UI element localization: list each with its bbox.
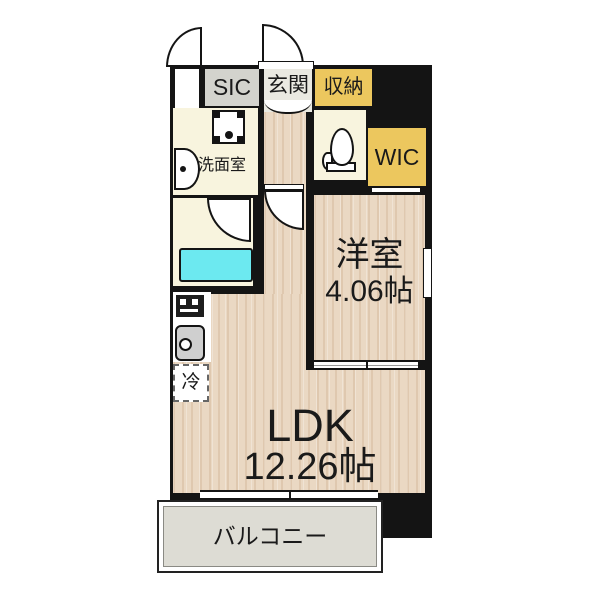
floor-plan: MB SIC 玄関 収納 洗面室 WIC 冷: [0, 0, 600, 600]
corner-pillar: [380, 493, 432, 538]
western-room-size: 4.06帖: [310, 276, 429, 308]
sic-closet: SIC: [205, 69, 259, 106]
ldk-label: LDK: [240, 402, 380, 449]
bathtub-icon: [179, 248, 253, 282]
balcony: バルコニー: [157, 500, 383, 573]
washing-machine-icon: [212, 110, 245, 144]
ldk-size: 12.26帖: [210, 448, 410, 488]
storage-closet: 収納: [315, 69, 372, 106]
entrance-door-arc-icon: [262, 24, 304, 66]
kitchen-sink-icon: [175, 325, 205, 361]
balcony-window-icon: [200, 490, 378, 500]
balcony-deck: バルコニー: [163, 506, 377, 567]
sic-label: SIC: [213, 75, 251, 99]
walk-in-closet: WIC: [368, 128, 426, 186]
genkan-label: 玄関: [267, 75, 309, 97]
stove-icon: [176, 295, 204, 317]
western-room-sliding-door-icon: [314, 360, 418, 370]
wic-sliding-door-icon: [372, 186, 420, 194]
refrigerator-space: 冷: [173, 364, 209, 402]
western-room-label: 洋室: [314, 238, 425, 274]
washroom-label: 洗面室: [186, 158, 258, 175]
storage-label: 収納: [324, 77, 364, 98]
refrigerator-label: 冷: [181, 373, 200, 393]
mb-door-arc-icon: [166, 27, 202, 67]
balcony-label: バルコニー: [213, 524, 328, 548]
wic-label: WIC: [375, 145, 420, 169]
toilet-icon: [330, 128, 354, 166]
